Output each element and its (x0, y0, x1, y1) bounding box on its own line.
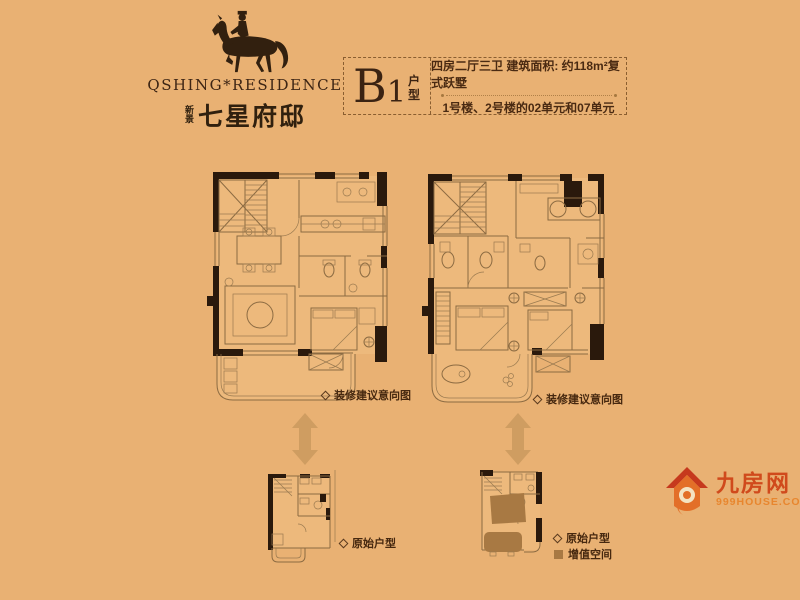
plan-caption-text: 增值空间 (568, 546, 612, 562)
horse-rider-icon (195, 10, 295, 74)
unit-building-line: 1号楼、2号楼的02单元和07单元 (442, 99, 614, 116)
plan-caption-text: 原始户型 (566, 530, 610, 546)
diamond-bullet-icon (553, 533, 563, 543)
floorplan-suggested-right (420, 158, 612, 405)
unit-type-label: 户型 (408, 75, 421, 103)
double-arrow-icon (505, 413, 531, 465)
diamond-bullet-icon (533, 394, 543, 404)
value-space-swatch (554, 550, 563, 559)
brand-name-cn: 七星府邸 (198, 97, 306, 133)
floorplan-original-right (476, 464, 548, 564)
dotted-separator (441, 94, 617, 97)
plan-caption-original-left: 原始户型 (340, 535, 396, 551)
unit-code: B1 (353, 63, 406, 109)
diamond-bullet-icon (321, 390, 331, 400)
house-icon (664, 462, 710, 518)
unit-spec-line: 四房二厅三卫 建筑面积: 约118m²复式跃墅 (431, 57, 626, 91)
brand-name-en: QSHING*RESIDENCE (125, 76, 365, 94)
plan-caption-text: 装修建议意向图 (334, 387, 411, 403)
double-arrow-icon (292, 413, 318, 465)
watermark-site-name: 九房网 (716, 472, 800, 495)
floorplan-poster: QSHING*RESIDENCE 新景 七星府邸 B1 户型 四房二厅三卫 建筑… (0, 0, 800, 600)
plan-caption-original-right: 原始户型 (554, 530, 610, 546)
plan-caption-suggested-left: 装修建议意向图 (322, 387, 411, 403)
watermark: 九房网 999HOUSE.COM (664, 462, 800, 518)
brand-logo: QSHING*RESIDENCE 新景 七星府邸 (125, 10, 365, 133)
plan-caption-text: 装修建议意向图 (546, 391, 623, 407)
plan-caption-value-space: 增值空间 (554, 546, 612, 562)
floorplan-suggested-left (203, 158, 395, 405)
unit-code-cell: B1 户型 (344, 58, 431, 114)
brand-name-cn-prefix: 新景 (184, 106, 195, 125)
unit-info-box: B1 户型 四房二厅三卫 建筑面积: 约118m²复式跃墅 1号楼、2号楼的02… (343, 57, 627, 115)
plan-caption-suggested-right: 装修建议意向图 (534, 391, 623, 407)
plan-caption-text: 原始户型 (352, 535, 396, 551)
unit-description: 四房二厅三卫 建筑面积: 约118m²复式跃墅 1号楼、2号楼的02单元和07单… (431, 58, 626, 114)
watermark-site-url: 999HOUSE.COM (716, 497, 800, 508)
floorplan-original-left (262, 470, 338, 566)
diamond-bullet-icon (339, 538, 349, 548)
